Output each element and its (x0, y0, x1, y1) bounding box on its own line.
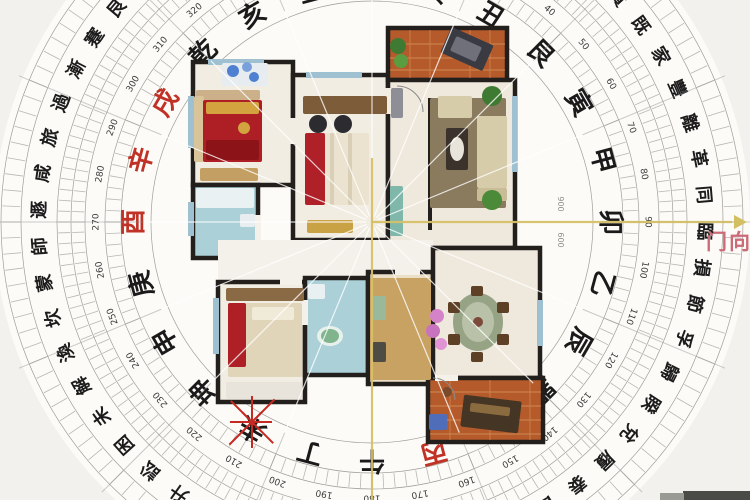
chair (448, 334, 460, 345)
degree-label: 80 (637, 168, 649, 181)
door-direction-label: 门向 (706, 229, 750, 254)
window (512, 96, 517, 172)
bed-2-red (305, 133, 325, 205)
hexagram-character: 遯 (29, 200, 51, 219)
window (188, 202, 194, 236)
flowers (430, 309, 444, 323)
balcony-plant (390, 38, 406, 54)
tray (450, 137, 464, 161)
luopan-floorplan-diagram: 0102030405060708090100110120130140150160… (0, 0, 750, 500)
bed1-headboard (196, 90, 260, 100)
vanity-flower (249, 72, 259, 82)
photo-edge-artifact (683, 491, 750, 500)
window (188, 96, 194, 148)
sink (308, 284, 325, 299)
bathtub (196, 188, 254, 208)
hexagram-character: 師 (28, 237, 51, 257)
wardrobe (226, 382, 302, 399)
entry-cabinet (391, 88, 403, 118)
bed-3-pillow (252, 307, 294, 320)
dimension-label: 900 (556, 196, 565, 211)
pillow (309, 115, 327, 133)
flowers (435, 338, 447, 350)
chair (497, 334, 509, 345)
mat (429, 414, 447, 430)
hexagram-character: 蒙 (33, 272, 57, 294)
chair (471, 286, 483, 296)
screenshot-root: 0102030405060708090100110120130140150160… (0, 0, 750, 500)
chair (497, 302, 509, 313)
vanity-flower (227, 65, 239, 77)
hexagram-character: 同 (692, 185, 714, 205)
window (213, 298, 219, 354)
dresser (200, 168, 258, 181)
shelf (303, 96, 387, 114)
dimension-label: 600 (556, 232, 565, 247)
kitchen-sink (372, 296, 386, 320)
bed-2-fold (330, 133, 334, 205)
balcony-plant (394, 54, 408, 68)
bed-3-headboard (226, 288, 304, 301)
window (306, 72, 362, 78)
vanity-flower (242, 62, 252, 72)
sink (240, 214, 255, 227)
hexagram-character: 咸 (31, 163, 54, 184)
flowers (426, 324, 440, 338)
photo-edge-artifact (660, 493, 684, 500)
stove (372, 342, 386, 362)
toilet-lid (321, 329, 339, 343)
pillow (334, 115, 352, 133)
plant (482, 86, 502, 106)
kitchen-counter (370, 278, 431, 380)
plant (482, 190, 502, 210)
bed-master-accent (238, 122, 250, 134)
chair (471, 352, 483, 362)
bed-master-pillows (206, 102, 259, 114)
sofa-single (438, 96, 472, 118)
centerpiece (473, 317, 483, 327)
window (538, 300, 543, 346)
